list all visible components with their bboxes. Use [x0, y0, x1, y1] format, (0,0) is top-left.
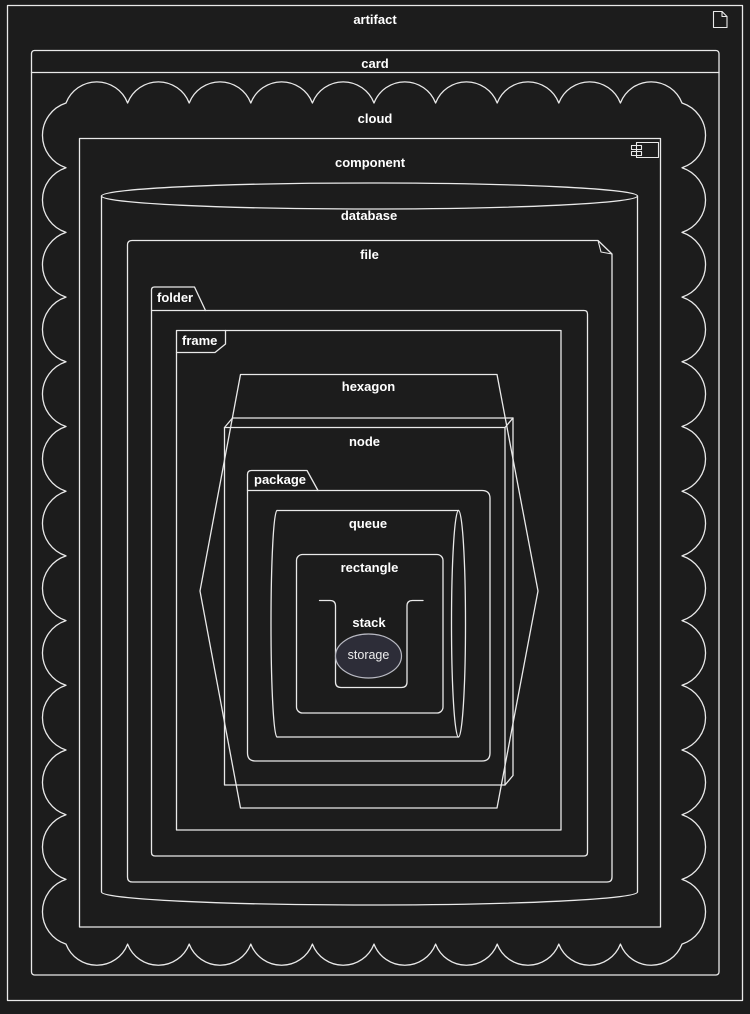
component-label: component: [79, 155, 661, 170]
diagram-shapes: [0, 0, 750, 1014]
node-label: node: [224, 434, 505, 449]
card-label: card: [31, 56, 719, 71]
rectangle-label: rectangle: [296, 560, 443, 575]
database-label: database: [101, 208, 637, 223]
file-label: file: [127, 247, 612, 262]
folder-label: folder: [157, 290, 193, 305]
cloud-label: cloud: [45, 111, 705, 126]
hexagon-label: hexagon: [240, 379, 497, 394]
diagram-canvas: artifact card cloud component database f…: [0, 0, 750, 1014]
stack-label: stack: [333, 615, 405, 630]
package-label: package: [254, 472, 306, 487]
storage-label: storage: [336, 648, 401, 663]
queue-label: queue: [277, 516, 459, 531]
artifact-label: artifact: [7, 12, 743, 27]
frame-label: frame: [182, 333, 217, 348]
